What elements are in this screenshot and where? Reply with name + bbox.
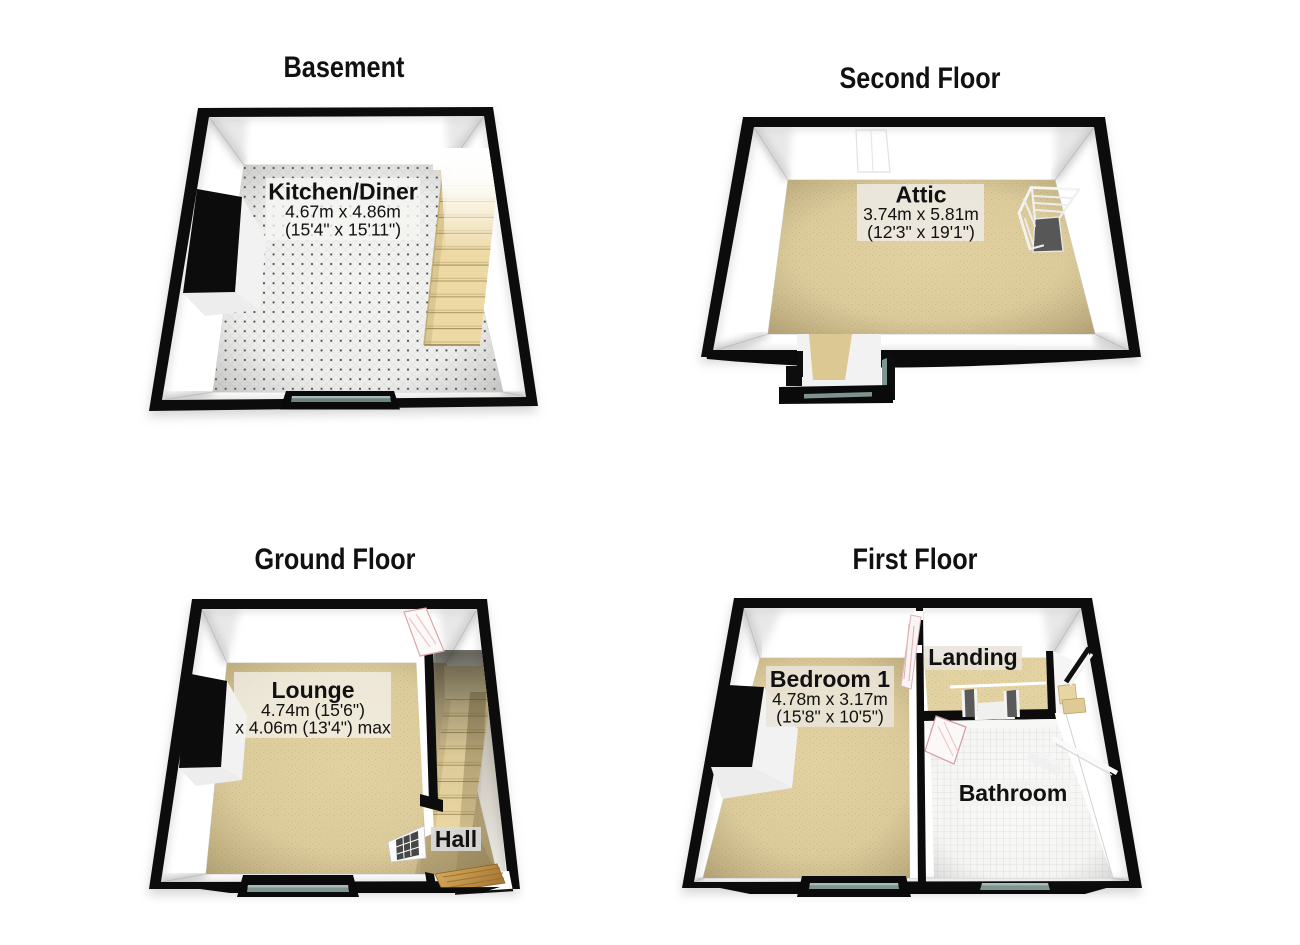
- svg-text:First Floor: First Floor: [853, 543, 978, 576]
- svg-text:Ground Floor: Ground Floor: [255, 543, 416, 576]
- svg-text:(12'3" x 19'1"): (12'3" x 19'1"): [867, 222, 975, 242]
- svg-text:3.74m x 5.81m: 3.74m x 5.81m: [863, 204, 979, 224]
- svg-text:4.67m x 4.86m: 4.67m x 4.86m: [285, 202, 401, 222]
- svg-text:Second Floor: Second Floor: [840, 62, 1001, 95]
- svg-text:(15'4" x 15'11"): (15'4" x 15'11"): [285, 220, 401, 240]
- svg-text:Hall: Hall: [435, 826, 477, 852]
- svg-text:Landing: Landing: [928, 644, 1017, 670]
- svg-text:x 4.06m (13'4") max: x 4.06m (13'4") max: [235, 718, 391, 738]
- svg-text:Bathroom: Bathroom: [959, 780, 1068, 806]
- svg-text:(15'8" x 10'5"): (15'8" x 10'5"): [776, 707, 884, 727]
- svg-text:Basement: Basement: [284, 51, 405, 84]
